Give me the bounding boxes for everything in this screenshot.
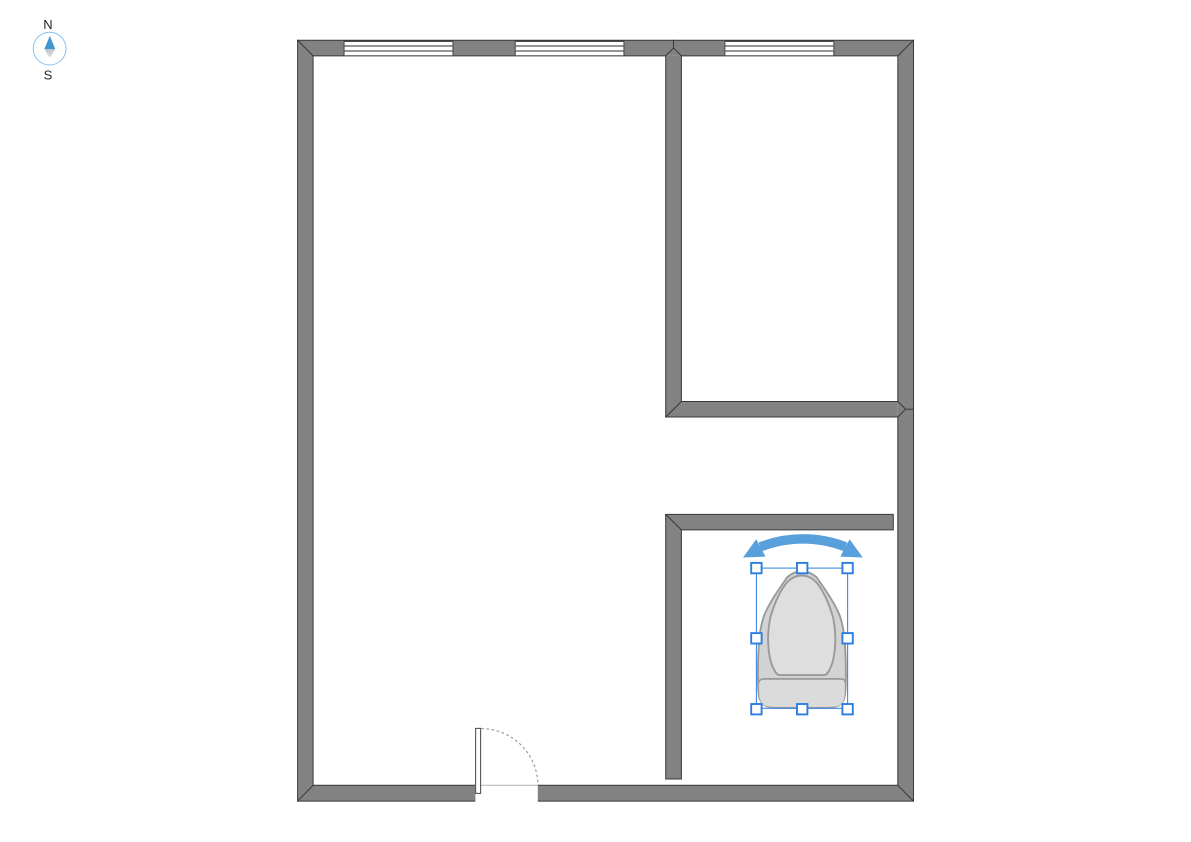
- svg-text:N: N: [43, 17, 52, 32]
- svg-text:S: S: [44, 67, 53, 82]
